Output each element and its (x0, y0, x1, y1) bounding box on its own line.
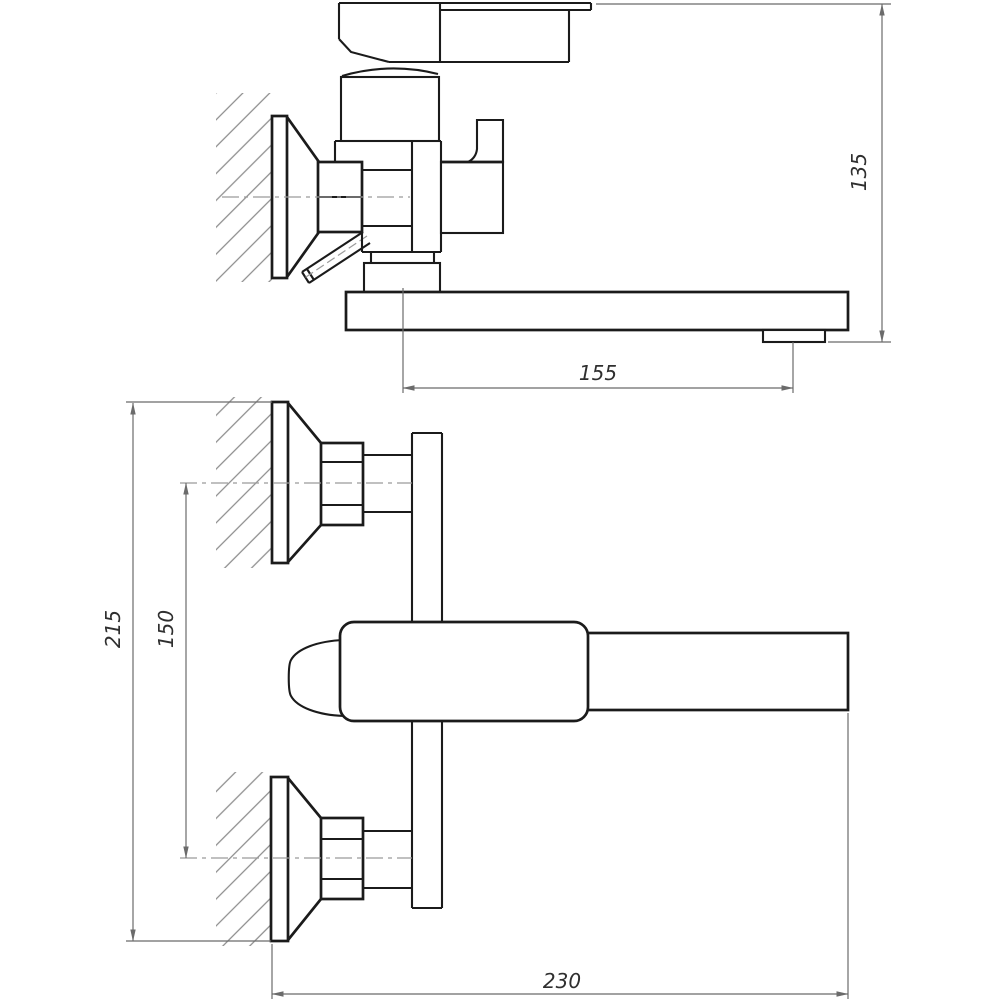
inlet-pipe (362, 170, 412, 226)
lower-inlet-assembly (271, 777, 412, 941)
front-view (180, 397, 848, 946)
eccentric-cone (288, 778, 321, 940)
spout (346, 292, 848, 330)
dimension-155: 155 (403, 342, 793, 393)
body-neck (371, 252, 434, 263)
dimension-label-135: 135 (847, 153, 871, 191)
dimension-150: 150 (154, 483, 186, 858)
inlet-pipe (363, 831, 412, 888)
cartridge-housing (341, 77, 439, 141)
mixer-body (340, 622, 588, 721)
dimension-label-215: 215 (101, 610, 125, 648)
wall-hatching (216, 93, 272, 282)
mounting-flange (364, 263, 440, 292)
handle-knob-front (289, 640, 344, 716)
faucet-drawing-svg: 135 155 (0, 0, 1000, 1000)
hex-nut (321, 443, 363, 525)
handle-lever (339, 3, 591, 62)
wall-plate (271, 777, 288, 941)
aerator (763, 330, 825, 342)
dimension-label-150: 150 (154, 610, 178, 648)
dimension-label-155: 155 (579, 361, 617, 385)
cartridge-dome (342, 68, 438, 76)
dimension-label-230: 230 (543, 969, 581, 993)
wall-hatching (216, 772, 272, 946)
technical-drawing-canvas: 135 155 (0, 0, 1000, 1000)
shower-bracket (468, 120, 503, 162)
side-view (216, 3, 848, 393)
diverter-block (441, 162, 503, 233)
spout (586, 633, 848, 710)
